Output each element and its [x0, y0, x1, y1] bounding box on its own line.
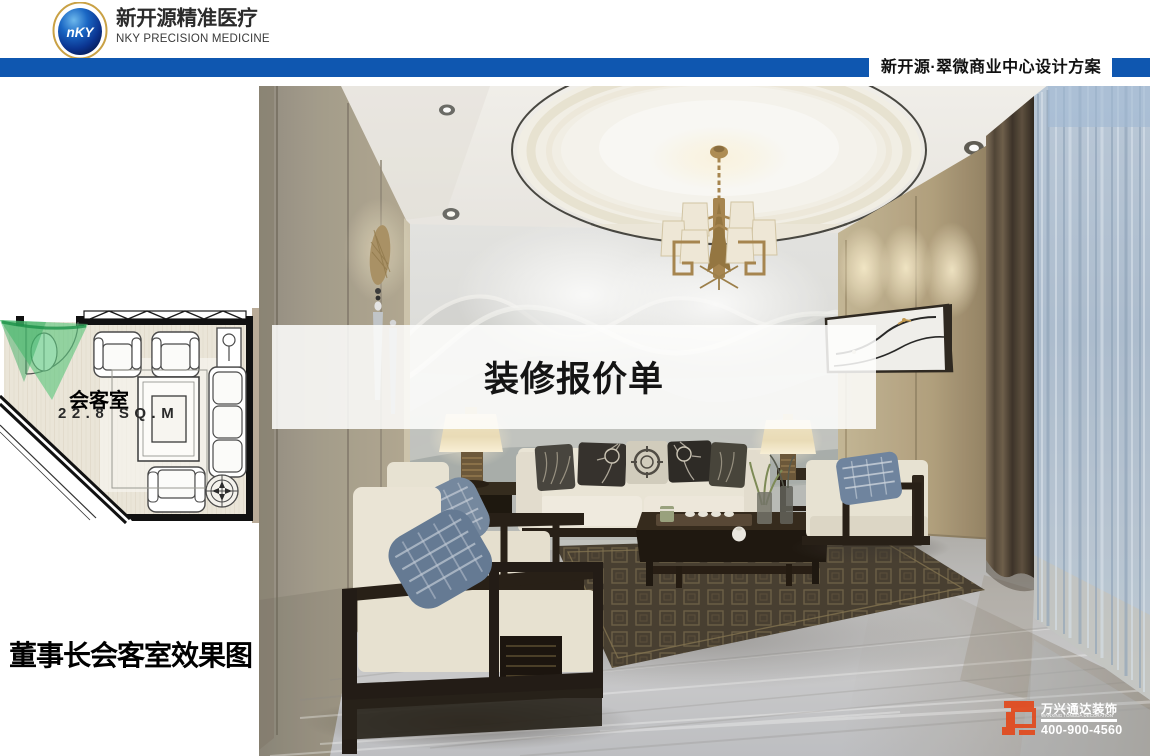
svg-text:nKY: nKY: [67, 25, 96, 40]
